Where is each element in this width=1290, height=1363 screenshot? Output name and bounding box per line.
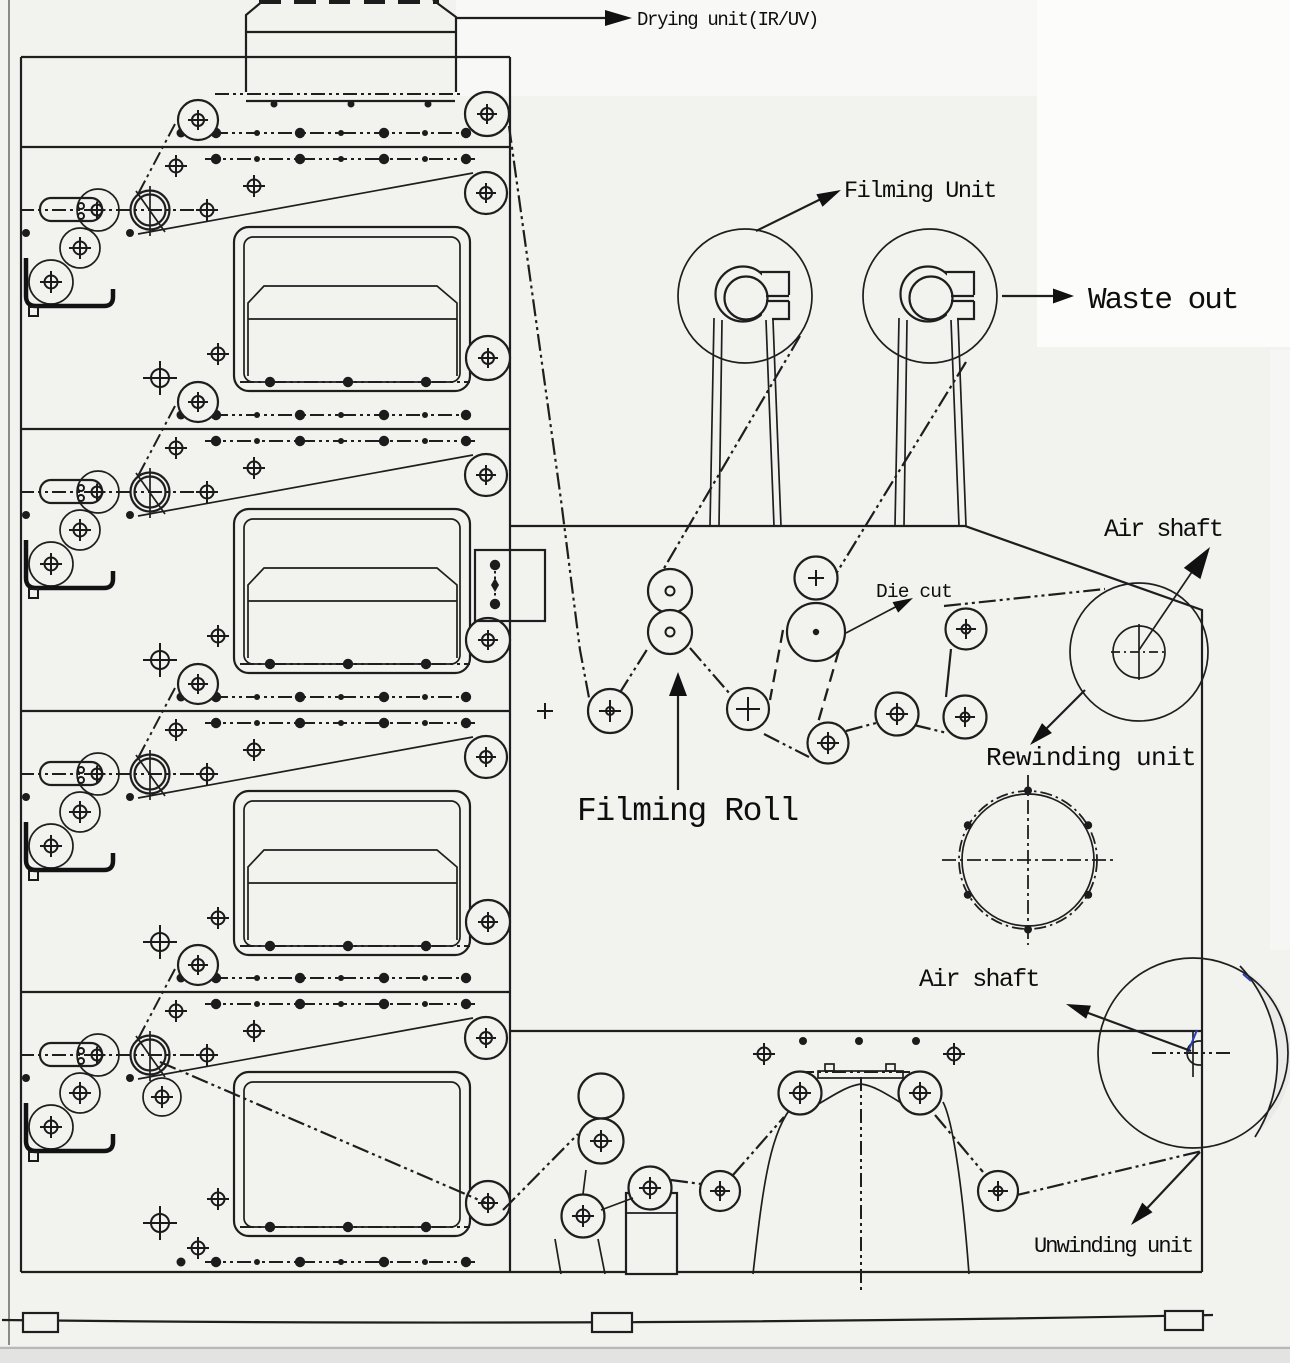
svg-text:Air shaft: Air shaft: [1104, 515, 1222, 544]
svg-text:Die cut: Die cut: [876, 581, 952, 603]
svg-text:Waste out: Waste out: [1088, 283, 1237, 318]
svg-text:Drying unit(IR/UV): Drying unit(IR/UV): [637, 9, 818, 31]
svg-text:Air shaft: Air shaft: [919, 965, 1039, 994]
svg-text:Rewinding unit: Rewinding unit: [986, 743, 1196, 773]
svg-text:Filming Roll: Filming Roll: [577, 793, 798, 830]
svg-text:Unwinding unit: Unwinding unit: [1034, 1234, 1192, 1259]
svg-text:Filming Unit: Filming Unit: [844, 178, 996, 205]
